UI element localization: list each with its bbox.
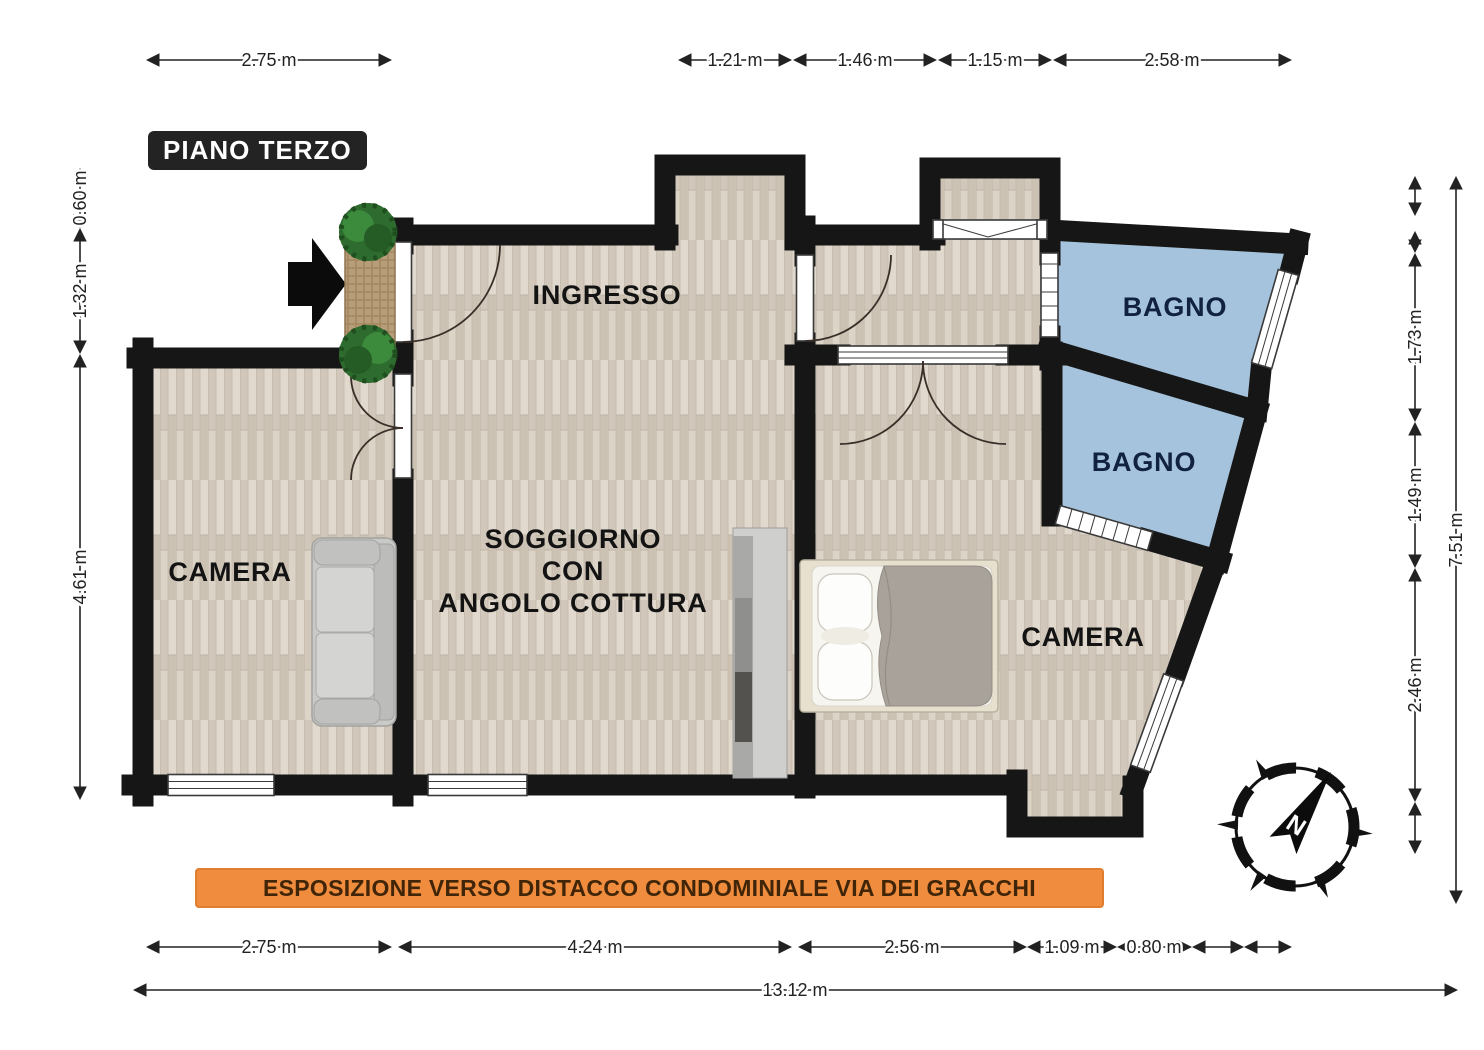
entrance-arrow-icon [288,238,346,330]
dim-bottom-4: 0.80 m [1126,937,1181,957]
floor-ingresso-niche [665,165,795,240]
label-soggiorno-1: SOGGIORNO [485,524,662,554]
floorplan-page: PIANO TERZO ESPOSIZIONE VERSO DISTACCO C… [0,0,1484,1050]
sofa [312,538,396,726]
plant-icon [339,203,397,261]
label-camera-right: CAMERA [1021,622,1144,652]
dim-bottom-2: 2.56 m [884,937,939,957]
dim-left-1: 1.32 m [70,263,90,318]
dim-top-3: 1.15 m [967,50,1022,70]
dim-left-2: 4.61 m [70,549,90,604]
dim-top-1: 1.21 m [707,50,762,70]
kitchen-counter [733,528,787,778]
window-casement-hallway [933,220,1047,239]
label-bagno-lower: BAGNO [1092,447,1197,477]
label-camera-left: CAMERA [168,557,291,587]
label-soggiorno-3: ANGOLO COTTURA [438,588,707,618]
dim-bottom-1: 4.24 m [567,937,622,957]
dim-right-total: 7.51 m [1446,512,1466,567]
dim-top-2: 1.46 m [837,50,892,70]
dim-bottom-total: 13.12 m [762,980,827,1000]
dim-bottom-3: 1.09 m [1044,937,1099,957]
label-ingresso: INGRESSO [533,280,682,310]
dim-top-4: 2.58 m [1144,50,1199,70]
label-soggiorno-2: CON [542,556,604,586]
compass-rose-icon: N [1217,757,1373,900]
floor-plan-drawing: CAMERA INGRESSO SOGGIORNO CON ANGOLO COT… [0,0,1484,1050]
door-bagno-upper [1041,253,1058,337]
bed [800,560,998,712]
plant-icon [339,325,397,383]
dim-top-0: 2.75 m [241,50,296,70]
dim-right-1: 1.49 m [1405,467,1425,522]
dim-bottom-0: 2.75 m [241,937,296,957]
dim-right-0: 1.73 m [1405,309,1425,364]
dim-right-2: 2.46 m [1405,657,1425,712]
dim-left-0: 0.60 m [70,170,90,225]
window-camera-left [168,775,274,796]
label-bagno-upper: BAGNO [1123,292,1228,322]
window-soggiorno [428,775,527,796]
